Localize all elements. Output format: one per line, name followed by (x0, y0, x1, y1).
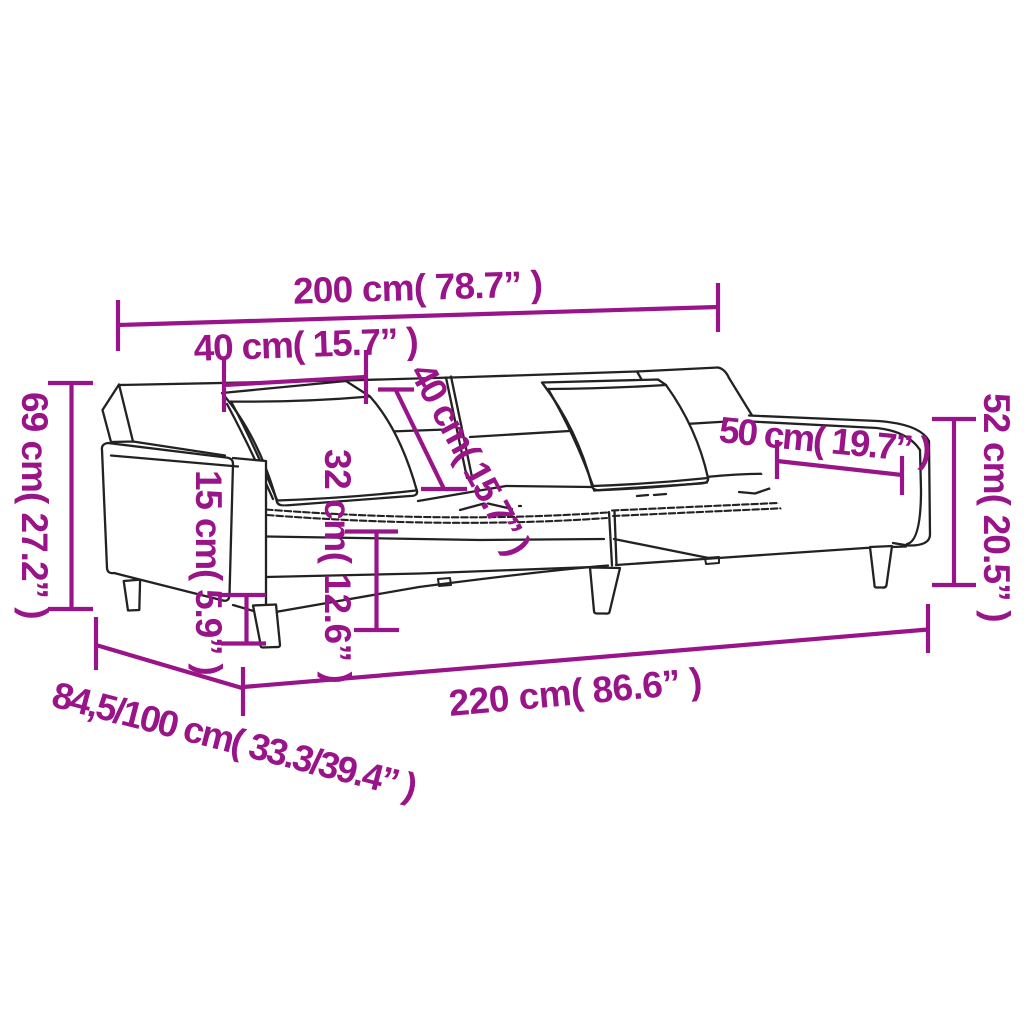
svg-text:32 cm( 12.6” ): 32 cm( 12.6” ) (317, 449, 358, 683)
svg-text:69 cm( 27.2” ): 69 cm( 27.2” ) (14, 392, 55, 619)
svg-text:40 cm( 15.7” ): 40 cm( 15.7” ) (193, 320, 418, 369)
svg-text:200 cm( 78.7” ): 200 cm( 78.7” ) (292, 263, 542, 311)
svg-text:52 cm( 20.5” ): 52 cm( 20.5” ) (976, 393, 1017, 622)
svg-text:15 cm( 5.9” ): 15 cm( 5.9” ) (188, 470, 229, 674)
